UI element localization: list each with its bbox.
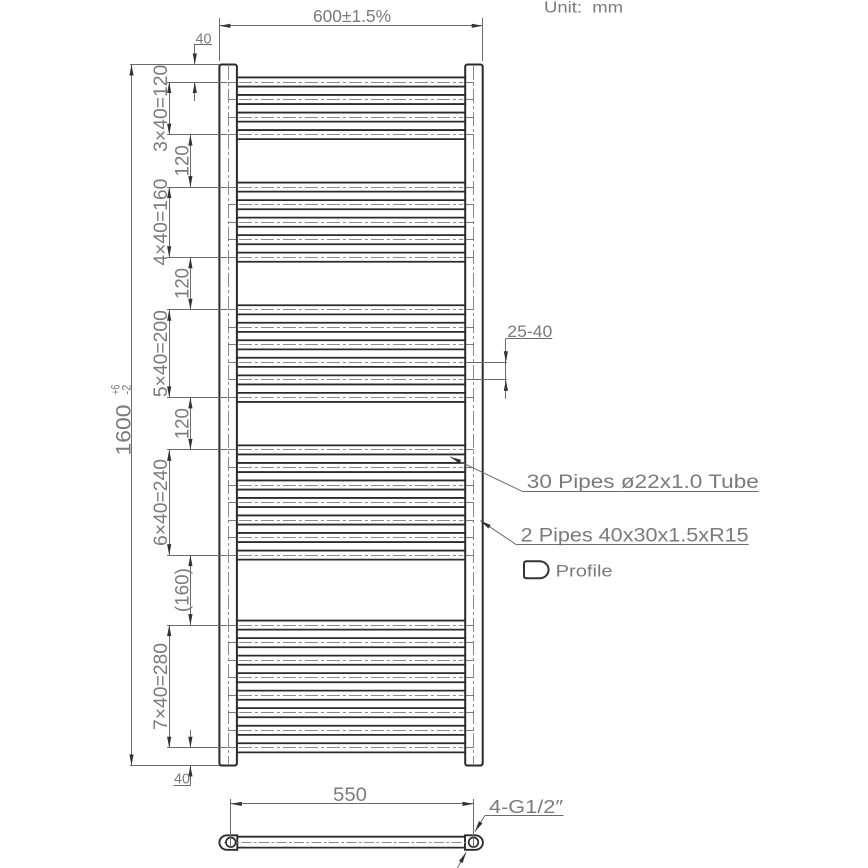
svg-text:120: 120 bbox=[173, 408, 194, 439]
svg-text:-2: -2 bbox=[120, 384, 134, 394]
svg-text:Unit: mm: Unit: mm bbox=[544, 0, 623, 16]
svg-text:4-G1/2″: 4-G1/2″ bbox=[489, 797, 564, 817]
svg-text:(160): (160) bbox=[173, 568, 194, 612]
svg-text:550: 550 bbox=[333, 785, 367, 806]
svg-text:4×40=160: 4×40=160 bbox=[151, 179, 172, 266]
svg-text:3×40=120: 3×40=120 bbox=[151, 65, 172, 152]
svg-text:7×40=280: 7×40=280 bbox=[151, 643, 172, 730]
svg-text:40: 40 bbox=[196, 32, 212, 48]
svg-text:120: 120 bbox=[173, 145, 194, 176]
svg-text:Profile: Profile bbox=[556, 562, 613, 581]
svg-text:2 Pipes 40x30x1.5xR15: 2 Pipes 40x30x1.5xR15 bbox=[521, 526, 749, 547]
svg-text:120: 120 bbox=[173, 268, 194, 299]
svg-text:40: 40 bbox=[174, 772, 190, 788]
svg-text:1600: 1600 bbox=[113, 405, 136, 456]
svg-text:30 Pipes ø22x1.0 Tube: 30 Pipes ø22x1.0 Tube bbox=[527, 472, 759, 493]
svg-text:5×40=200: 5×40=200 bbox=[151, 310, 172, 397]
svg-text:600±1.5%: 600±1.5% bbox=[313, 6, 391, 26]
svg-text:6×40=240: 6×40=240 bbox=[151, 459, 172, 546]
